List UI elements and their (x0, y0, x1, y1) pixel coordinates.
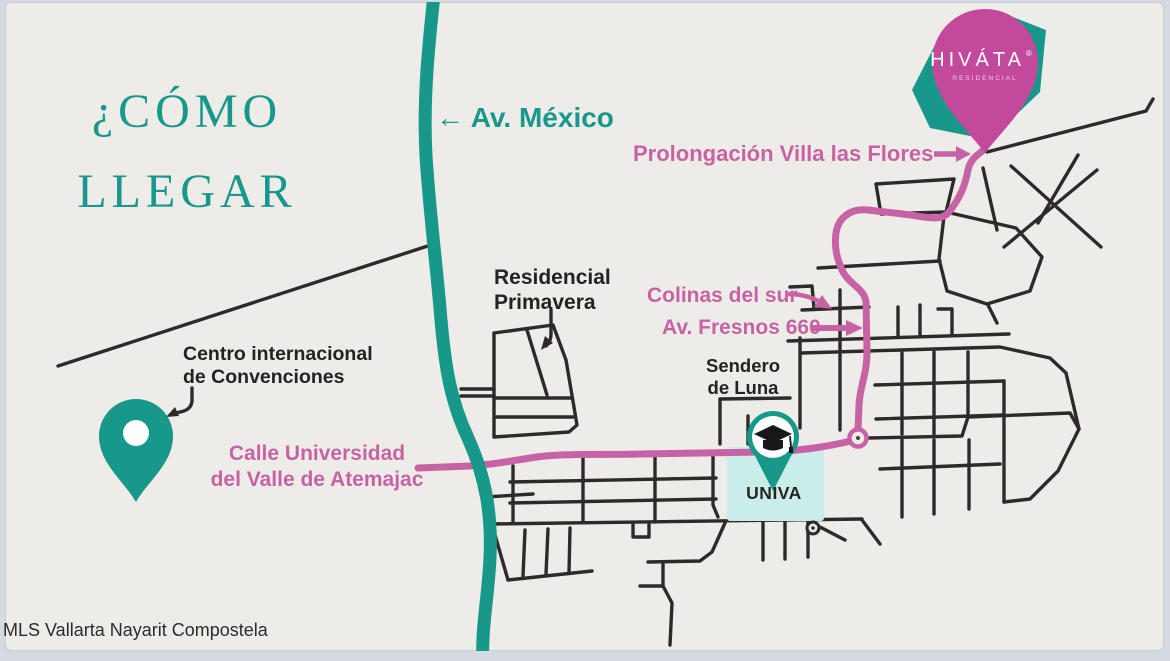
street-network (58, 99, 1153, 645)
primavera-polygon (494, 325, 577, 437)
street-segment (546, 529, 548, 574)
street-segment (569, 528, 570, 573)
street-segment (820, 527, 845, 540)
street-segment (875, 381, 1004, 385)
street-segment (862, 520, 880, 544)
street-segment (523, 530, 525, 576)
street-segment (939, 212, 1042, 304)
colinas-arrow-icon (788, 294, 832, 309)
centro-pointer-arrow-icon (166, 388, 192, 417)
street-segment (1004, 170, 1097, 247)
hivata-subtitle-text: RESIDENCIAL (952, 75, 1017, 82)
registered-mark: ® (1026, 49, 1036, 58)
map-canvas: HIVÁTA® RESIDENCIAL (0, 0, 1170, 661)
street-segment (988, 305, 997, 323)
street-segment (663, 586, 672, 645)
roundabout-small (807, 522, 819, 534)
street-segment (58, 243, 437, 366)
route-line (418, 148, 985, 468)
prolongacion-arrow-icon (934, 146, 971, 162)
pin-center-dot (123, 420, 149, 446)
fresnos-arrow-icon (812, 320, 863, 336)
hivata-brand-text: HIVÁTA® (930, 48, 1036, 71)
street-segment (720, 398, 790, 399)
street-segment (648, 523, 725, 562)
av-mexico-road (425, 0, 490, 661)
street-segment (1004, 373, 1079, 502)
street-segment (633, 524, 649, 537)
street-segment (510, 499, 716, 503)
street-segment (510, 478, 716, 482)
primavera-pointer-arrow-icon (541, 310, 553, 350)
hivata-pin: HIVÁTA® RESIDENCIAL (930, 9, 1038, 153)
street-segment (713, 454, 718, 517)
route-north-segment (835, 148, 985, 430)
centro-convenciones-pin (99, 399, 173, 502)
street-segment (938, 309, 952, 335)
roundabout-route (850, 430, 867, 447)
street-segment (508, 571, 592, 580)
residencial-primavera-area (494, 325, 577, 437)
street-segment (880, 464, 1000, 469)
street-segment (802, 307, 869, 310)
street-segment (486, 494, 533, 497)
